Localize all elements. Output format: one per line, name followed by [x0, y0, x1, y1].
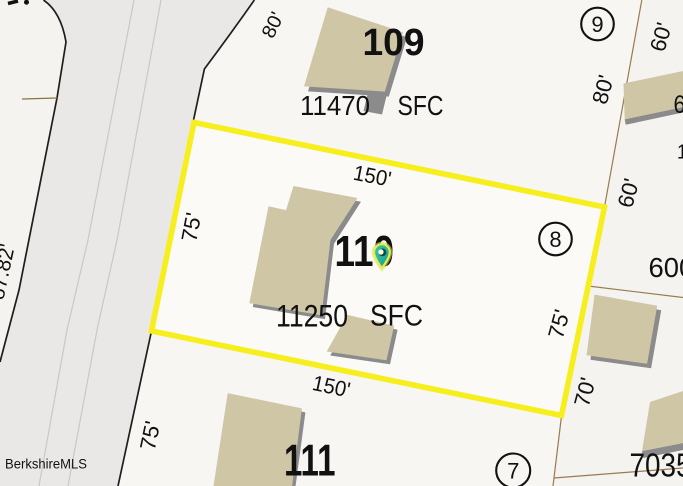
svg-text:7: 7: [507, 459, 519, 484]
svg-text:111: 111: [284, 437, 336, 486]
svg-text:SFC: SFC: [398, 90, 444, 121]
svg-text:SFC: SFC: [370, 300, 423, 333]
svg-text:11250: 11250: [276, 298, 348, 334]
svg-text:60: 60: [674, 91, 683, 119]
svg-text:7035: 7035: [630, 447, 683, 484]
svg-text:11: 11: [677, 141, 683, 164]
svg-text:6005: 6005: [649, 252, 683, 283]
svg-text:11470: 11470: [300, 90, 370, 121]
svg-text:BerkshireMLS: BerkshireMLS: [5, 457, 87, 472]
svg-text:9: 9: [591, 12, 603, 37]
svg-text:109: 109: [363, 22, 425, 64]
svg-text:8: 8: [549, 227, 561, 252]
